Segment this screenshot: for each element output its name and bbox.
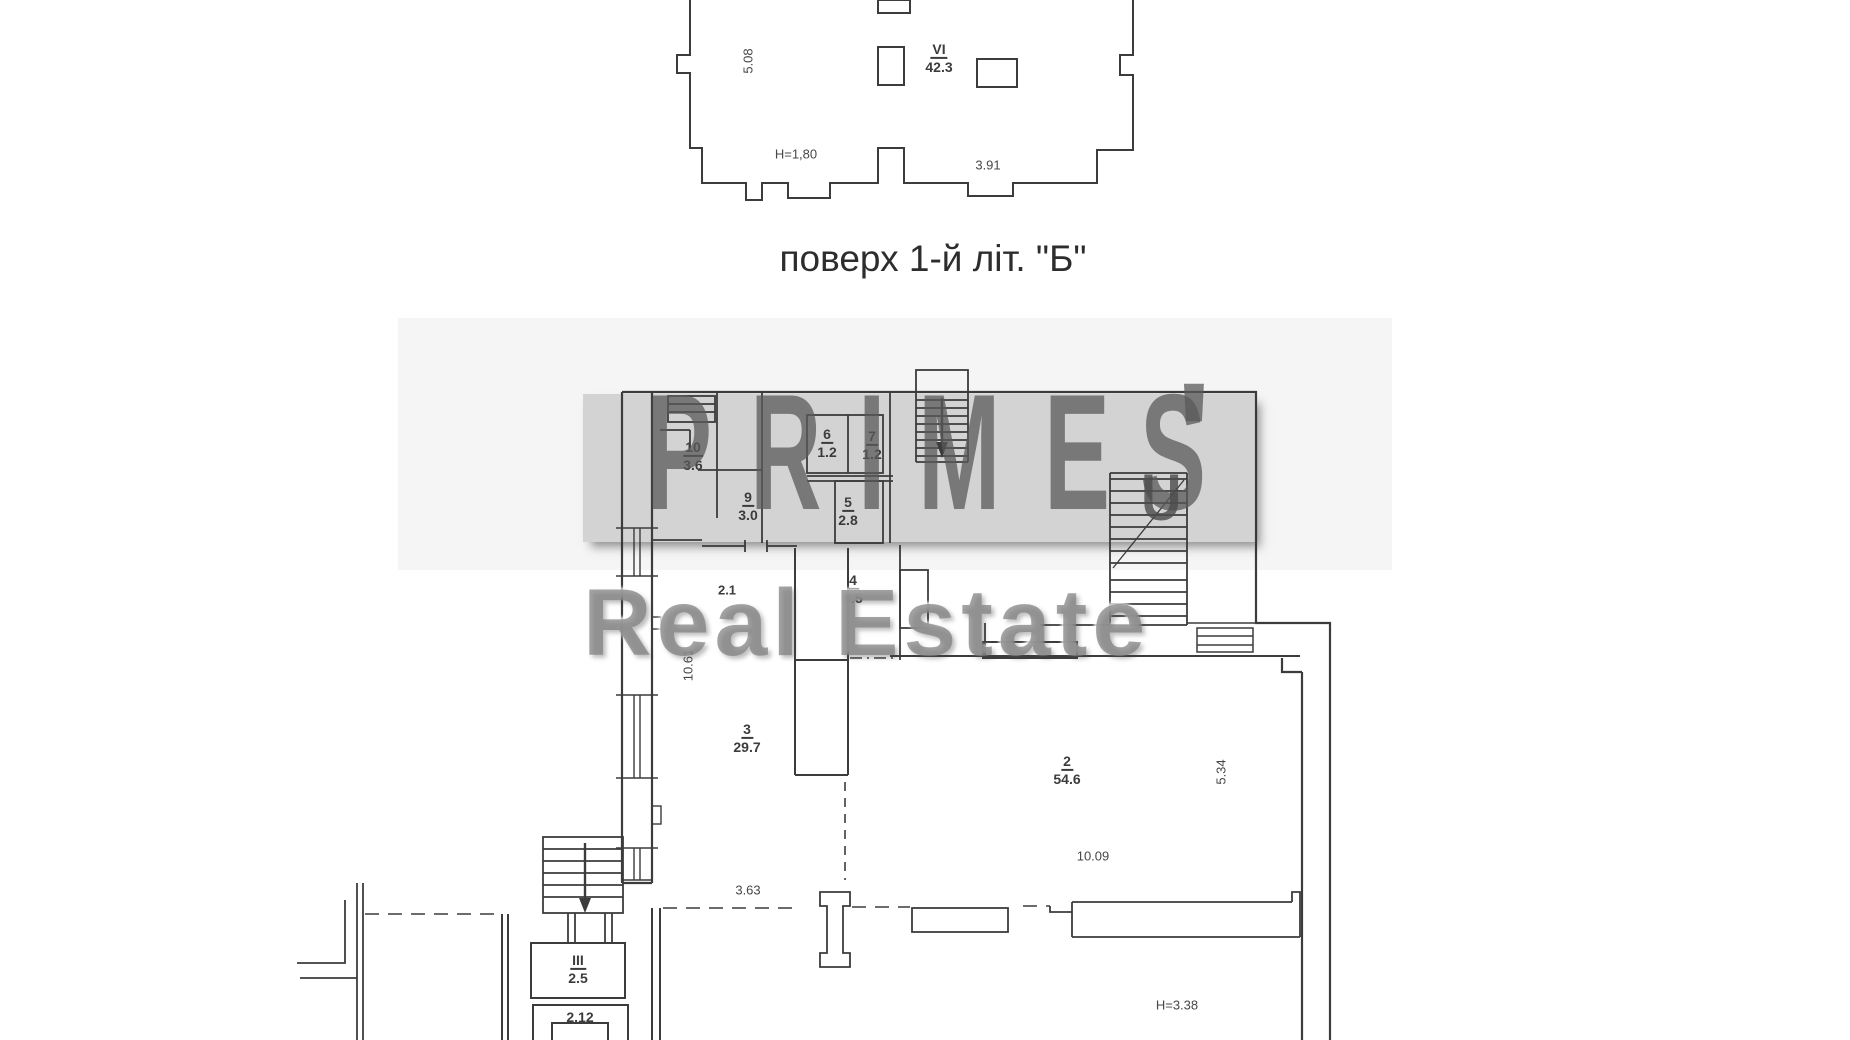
watermark-glyph-u: U xyxy=(1141,464,1182,530)
adjacent-structure-walls xyxy=(297,883,363,1040)
room-2-area: 54.6 xyxy=(1053,771,1080,787)
dim-bottom-left: 3.63 xyxy=(735,883,760,898)
upper-dim-bottom: 3.91 xyxy=(975,158,1000,173)
floorplan-scan-page: 5.08 VI 42.3 H=1,80 3.91 поверх 1-й літ.… xyxy=(0,0,1850,1040)
upper-room-number: VI xyxy=(930,41,947,59)
watermark-letter-m: M xyxy=(918,370,1000,535)
dim-ceiling-height: H=3.38 xyxy=(1156,998,1198,1013)
room-III-number: III xyxy=(570,952,586,970)
dim-right-side: 5.34 xyxy=(1214,759,1229,784)
dashed-openings xyxy=(365,658,1050,914)
upper-room-label: VI 42.3 xyxy=(925,41,952,75)
room-2-label: 2 54.6 xyxy=(1053,753,1080,787)
top-right-window xyxy=(1187,623,1256,652)
upper-outer-walls xyxy=(677,0,1133,200)
bottom-right-walls xyxy=(912,892,1300,937)
upper-floorplan-drawing xyxy=(640,0,1160,212)
upper-dim-height: H=1,80 xyxy=(775,147,817,162)
room-212-label: 2.12 xyxy=(566,1009,593,1025)
upper-dim-side: 5.08 xyxy=(741,48,756,73)
room-3-label: 3 29.7 xyxy=(733,721,760,755)
floor-caption: поверх 1-й літ. "Б" xyxy=(758,238,1108,280)
upper-room-area: 42.3 xyxy=(925,59,952,75)
watermark-letter-p: P xyxy=(646,370,712,535)
room-2-number: 2 xyxy=(1061,753,1073,771)
watermark-subtitle: Real Estate xyxy=(583,576,1150,671)
watermark-letter-e: E xyxy=(1044,370,1110,535)
room-III-label: III 2.5 xyxy=(568,952,587,986)
watermark-letter-r: R xyxy=(750,370,822,535)
watermark-letter-i: I xyxy=(858,370,886,535)
room-III-area: 2.5 xyxy=(568,970,587,986)
wall-pier xyxy=(820,892,850,967)
staircase-bottom-icon xyxy=(543,837,623,943)
room-3-number: 3 xyxy=(741,721,753,739)
dim-room2-width: 10.09 xyxy=(1077,849,1110,864)
room-3-area: 29.7 xyxy=(733,739,760,755)
